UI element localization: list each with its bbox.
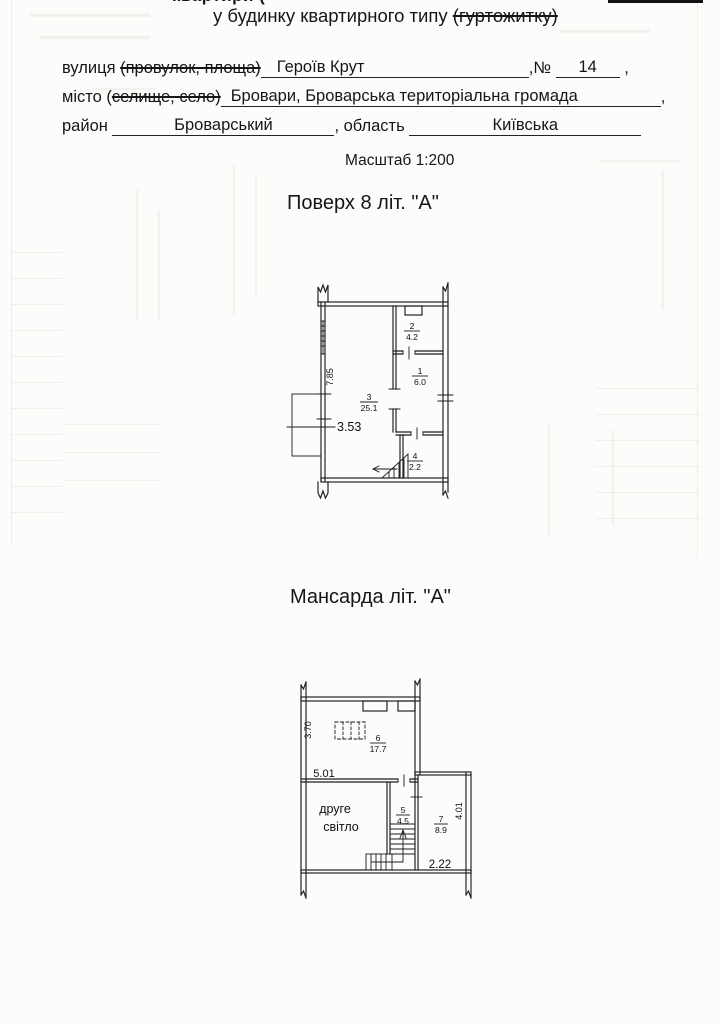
svg-text:4.5: 4.5 xyxy=(397,816,409,826)
svg-text:1: 1 xyxy=(418,366,423,376)
void-label-line1: друге xyxy=(319,802,351,816)
scanned-document-page: квартири ( у будинку квартирного типу (г… xyxy=(0,0,720,1025)
document-title: у будинку квартирного типу (гуртожитку) xyxy=(213,5,558,27)
room-label-2: 2 4.2 xyxy=(404,321,420,342)
clipped-top-underline xyxy=(608,0,703,3)
floor-plan-drawing: 7.85 3.53 2 4.2 1 6.0 3 25.1 4 2.2 xyxy=(285,276,475,502)
dimension-3-53: 3.53 xyxy=(337,420,361,434)
svg-text:4: 4 xyxy=(413,451,418,461)
floor-plan-title: Поверх 8 літ. "А" xyxy=(287,192,439,215)
floor-plan-labels: 7.85 3.53 2 4.2 1 6.0 3 25.1 4 2.2 xyxy=(325,321,428,472)
room-label-5: 5 4.5 xyxy=(396,805,410,826)
dimension-7-85: 7.85 xyxy=(325,368,335,386)
room-label-4: 4 2.2 xyxy=(407,451,423,472)
comma: , xyxy=(624,59,629,77)
address-line-district: район Броварський, область Київська xyxy=(62,115,641,136)
svg-text:17.7: 17.7 xyxy=(370,744,387,754)
street-label: вулиця xyxy=(62,59,116,77)
scale-label: Масштаб 1:200 xyxy=(345,152,454,170)
svg-text:7: 7 xyxy=(439,814,444,824)
number-value: 14 xyxy=(556,57,620,78)
city-value: Бровари, Броварська територіальна громад… xyxy=(221,86,661,107)
dimension-2-22: 2.22 xyxy=(429,859,451,871)
document-title-struck: (гуртожитку) xyxy=(453,5,558,26)
district-value: Броварський xyxy=(112,115,334,136)
dimension-5-01: 5.01 xyxy=(313,768,334,780)
svg-text:6: 6 xyxy=(376,733,381,743)
region-label: , область xyxy=(334,117,404,135)
street-struck: (провулок, площа) xyxy=(120,59,261,77)
svg-text:25.1: 25.1 xyxy=(361,403,378,413)
number-label: ,№ xyxy=(529,59,551,77)
attic-plan-drawing: 3.70 5.01 4.01 2.22 друге світло 6 17.7 … xyxy=(288,672,488,900)
svg-text:2: 2 xyxy=(410,321,415,331)
attic-plan-title: Мансарда літ. "А" xyxy=(290,586,451,609)
room-label-7: 7 8.9 xyxy=(434,814,448,835)
svg-text:5: 5 xyxy=(401,805,406,815)
attic-plan-labels: 3.70 5.01 4.01 2.22 друге світло 6 17.7 … xyxy=(303,721,464,871)
svg-text:8.9: 8.9 xyxy=(435,825,447,835)
svg-text:2.2: 2.2 xyxy=(409,462,421,472)
floor-plan-walls xyxy=(287,283,453,498)
room-label-6: 6 17.7 xyxy=(370,733,387,754)
street-value: Героїв Крут xyxy=(261,57,529,78)
room-label-1: 1 6.0 xyxy=(412,366,428,387)
void-label-line2: світло xyxy=(323,820,359,834)
document-title-text: у будинку квартирного типу xyxy=(213,5,448,26)
room-label-3: 3 25.1 xyxy=(360,392,378,413)
dimension-3-70: 3.70 xyxy=(303,721,313,739)
svg-text:3: 3 xyxy=(367,392,372,402)
address-line-street: вулиця (провулок, площа)Героїв Крут,№ 14… xyxy=(62,57,629,78)
svg-text:4.2: 4.2 xyxy=(406,332,418,342)
region-value: Київська xyxy=(409,115,641,136)
district-label: район xyxy=(62,117,108,135)
city-struck: селище, село) xyxy=(112,88,221,106)
dimension-4-01: 4.01 xyxy=(454,802,464,820)
svg-text:6.0: 6.0 xyxy=(414,377,426,387)
address-line-city: місто (селище, село)Бровари, Броварська … xyxy=(62,86,665,107)
comma: , xyxy=(661,88,666,106)
city-label: місто ( xyxy=(62,88,112,106)
